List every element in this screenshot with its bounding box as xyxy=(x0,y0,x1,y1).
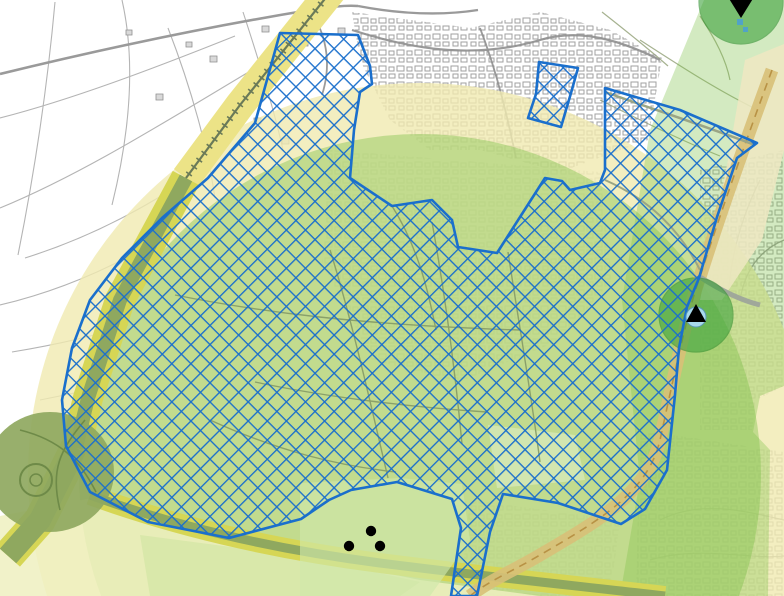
marker-dot[interactable] xyxy=(366,526,376,536)
map-viewport[interactable] xyxy=(0,0,784,596)
map-canvas[interactable] xyxy=(0,0,784,596)
marker-dot[interactable] xyxy=(344,541,354,551)
marker-dot[interactable] xyxy=(375,541,385,551)
